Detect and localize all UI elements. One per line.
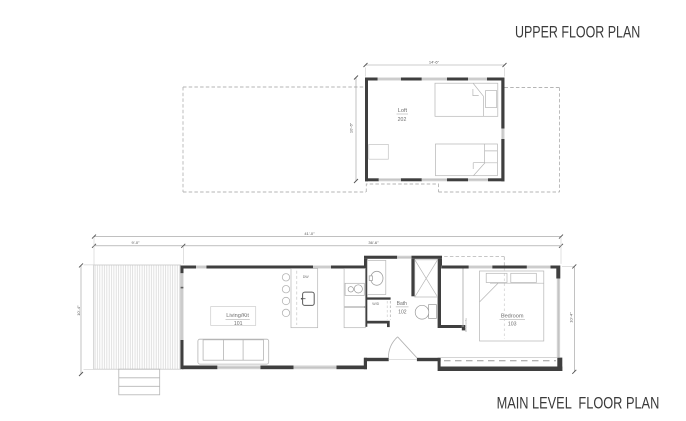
svg-text:14'-6": 14'-6" bbox=[429, 60, 440, 65]
svg-text:202: 202 bbox=[398, 117, 407, 123]
svg-text:WARDROBE: WARDROBE bbox=[465, 318, 468, 332]
svg-text:41'-0": 41'-0" bbox=[304, 231, 315, 236]
svg-text:9'-0": 9'-0" bbox=[132, 240, 141, 245]
svg-text:W/D: W/D bbox=[372, 302, 379, 306]
svg-text:MAIN LEVEL FLOOR PLAN: MAIN LEVEL FLOOR PLAN bbox=[497, 394, 660, 412]
svg-text:UPPER FLOOR PLAN: UPPER FLOOR PLAN bbox=[515, 23, 640, 41]
svg-text:Living/Kit: Living/Kit bbox=[226, 313, 249, 319]
svg-text:Bath: Bath bbox=[397, 301, 408, 307]
svg-text:Loft: Loft bbox=[398, 108, 408, 114]
svg-text:36'-6": 36'-6" bbox=[368, 240, 379, 245]
svg-text:103: 103 bbox=[508, 321, 517, 327]
svg-text:102: 102 bbox=[398, 309, 407, 315]
svg-text:10'-4": 10'-4" bbox=[569, 312, 574, 323]
svg-text:DW: DW bbox=[303, 275, 310, 279]
svg-text:10'-6": 10'-6" bbox=[349, 122, 354, 133]
svg-text:10'-4": 10'-4" bbox=[76, 305, 81, 316]
svg-text:101: 101 bbox=[234, 321, 243, 327]
